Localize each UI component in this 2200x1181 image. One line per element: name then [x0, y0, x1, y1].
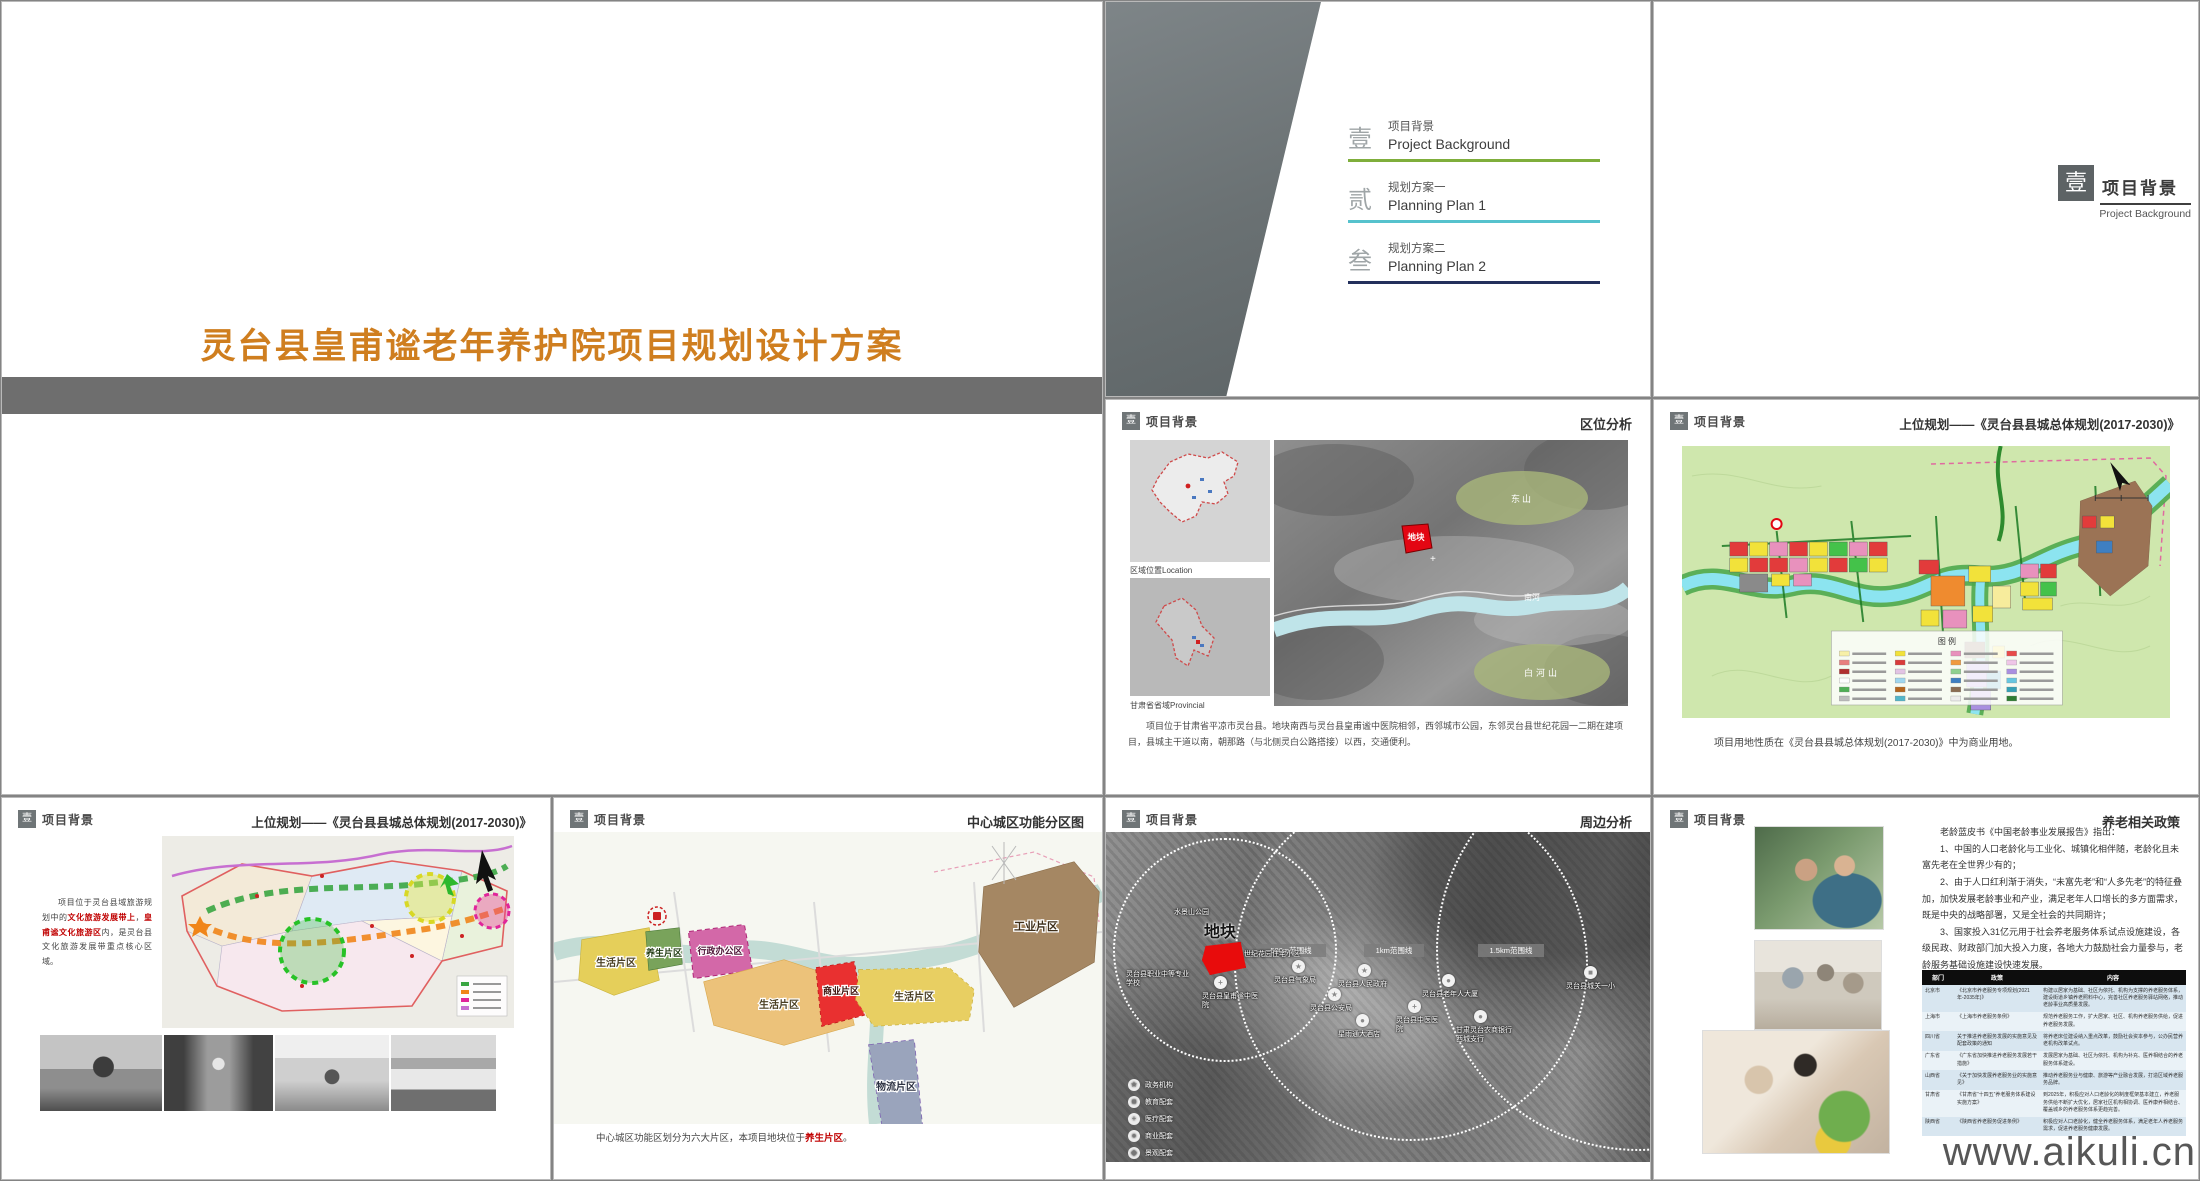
site-label: 地块 [1407, 532, 1425, 542]
slide-title: 周边分析 [1580, 812, 1632, 831]
cell-region: 山西省 [1922, 1070, 1954, 1090]
tourism-body-text: 项目位于灵台县域旅游规划中的文化旅游发展带上，皇甫谧文化旅游区内，是灵台县文化旅… [42, 896, 152, 970]
policy-intro-line: 老龄蓝皮书《中国老龄事业发展报告》指出： [1922, 824, 2184, 841]
slide-header: 壹 项目背景 [1670, 810, 1746, 828]
toc-item-2-label-zh: 规划方案一 [1388, 179, 1486, 195]
huangfumi-tourism-zone-circle [280, 919, 344, 983]
surroundings-aerial-map: 500m范围线 1km范围线 1.5km范围线 地块 + ★ ★ ★ ● + ●… [1106, 832, 1650, 1162]
china-map-caption: 区域位置Location [1130, 565, 1192, 576]
cell-region: 甘肃省 [1922, 1090, 1954, 1117]
slide-title: 上位规划——《灵台县县城总体规划(2017-2030)》 [251, 812, 532, 831]
zoning-caption-text-1: 中心城区功能区划分为六大片区，本项目地块位于 [596, 1133, 805, 1144]
poi-senior-center: 灵台县老年人大厦 [1422, 990, 1478, 999]
slide-header: 壹 项目背景 [1122, 810, 1198, 828]
zoning-caption-highlight: 养生片区 [805, 1133, 843, 1144]
policy-intro-line: 2、由于人口红利渐于消失，“未富先老”和“人多先老”的特征叠加，加快发展老龄事业… [1922, 874, 2184, 924]
government-star-icon: ★ [1128, 1079, 1140, 1091]
cell-policy: 《关于加快发展养老服务业的实施意见》 [1954, 1070, 2040, 1090]
cell-region: 四川省 [1922, 1031, 1954, 1051]
section-title-en: Project Background [2062, 208, 2191, 220]
zone-label-industrial: 工业片区 [1014, 919, 1058, 933]
section-underline [2100, 203, 2191, 205]
cell-content: 构建以居家为基础、社区为依托、机构为支撑的养老服务体系，建设街道乡镇养老照料中心… [2040, 985, 2186, 1012]
policy-table-header-policy: 政策 [1954, 970, 2040, 985]
zone-label-admin: 行政办公区 [696, 945, 742, 956]
policy-intro: 老龄蓝皮书《中国老龄事业发展报告》指出： 1、中国的人口老龄化与工业化、城镇化相… [1922, 824, 2184, 974]
legend-item-commercial: ● 商业配套 [1128, 1130, 1173, 1142]
slide-toc[interactable]: 壹 项目背景 Project Background 贰 规划方案一 Planni… [1106, 2, 1650, 396]
slide-header: 壹 项目背景 [1122, 412, 1198, 430]
slide-elderly-policy[interactable]: 壹 项目背景 养老相关政策 老龄蓝皮书《中国老龄事业发展报告》指出： 1、中国的… [1654, 798, 2198, 1179]
zone-label-logistics: 物流片区 [876, 1080, 916, 1093]
slide-location-analysis[interactable]: 壹 项目背景 区位分析 区域位置Location 甘肃省省域Provincial [1106, 400, 1650, 794]
zone-label-living-center: 生活片区 [759, 998, 799, 1011]
cover-bar [2, 377, 1102, 414]
poi-bank-branch: 甘肃灵台农商银行西城支行 [1456, 1026, 1518, 1044]
toc-item-3-label-en: Planning Plan 2 [1388, 258, 1486, 274]
slide-title: 中心城区功能分区图 [967, 812, 1084, 831]
slide-surroundings-analysis[interactable]: 壹 项目背景 周边分析 500m范围线 1km范围线 1.5km范围线 地块 +… [1106, 798, 1650, 1179]
section-number-badge: 壹 [1122, 412, 1140, 430]
poi-primary-school: 灵台县城关一小 [1566, 982, 1615, 991]
cell-region: 北京市 [1922, 985, 1954, 1012]
medical-cross-icon: + [1128, 1113, 1140, 1125]
poi-tcm-hospital: 灵台县皇甫谧中医院 [1202, 992, 1258, 1010]
ring-label-1km: 1km范围线 [1364, 944, 1424, 957]
tourism-text-2: ， [136, 913, 145, 922]
slide-header: 壹 项目背景 [18, 810, 94, 828]
master-plan-caption: 项目用地性质在《灵台县县城总体规划(2017-2030)》中为商业用地。 [1714, 734, 2018, 749]
tourism-planning-map [162, 836, 514, 1028]
zoning-caption: 中心城区功能区划分为六大片区，本项目地块位于养生片区。 [596, 1130, 853, 1144]
table-row: 上海市 《上海市养老服务条例》 规范养老服务工作，扩大居家、社区、机构养老服务供… [1922, 1012, 2186, 1032]
cell-region: 广东省 [1922, 1051, 1954, 1071]
toc-item-3[interactable]: 叁 规划方案二 Planning Plan 2 [1348, 240, 1600, 284]
site-location-dot [1196, 640, 1200, 644]
government-star-icon: ★ [1328, 988, 1341, 1001]
poi-tcm-clinic: 灵台县中医医院 [1396, 1016, 1440, 1034]
section-number-badge: 壹 [1670, 810, 1688, 828]
poi-public-security: 灵台县公安局 [1310, 1004, 1352, 1013]
site-watermark: www.aikuli.cn [1943, 1130, 2196, 1175]
photo-nurse-with-couple [1702, 1030, 1890, 1154]
site-location-dot [1186, 484, 1191, 489]
toc-item-1-number: 壹 [1348, 128, 1372, 152]
toc-item-3-number: 叁 [1348, 250, 1372, 274]
tourism-highlight-1: 文化旅游发展带上 [68, 913, 136, 922]
legend-item-medical: + 医疗配套 [1128, 1113, 1173, 1125]
photo-caregiver-tablet [1754, 826, 1884, 930]
slide-header-label: 项目背景 [1694, 811, 1746, 828]
hospital-cross-icon: + [1430, 554, 1436, 565]
site-marker [653, 912, 661, 920]
cell-content: 推动养老服务业与健康、旅游等产业融合发展，打造区域养老服务品牌。 [2040, 1070, 2186, 1090]
photo-temple-aerial [275, 1035, 389, 1111]
slide-master-plan[interactable]: 壹 项目背景 上位规划——《灵台县县城总体规划(2017-2030)》 [1654, 400, 2198, 794]
legend-label: 景观配套 [1145, 1148, 1173, 1158]
gansu-map-caption: 甘肃省省域Provincial [1130, 700, 1205, 711]
toc-item-3-label-zh: 规划方案二 [1388, 240, 1486, 256]
photo-care-home-group [1754, 940, 1882, 1030]
poi-meteorological-bureau: 灵台县气象局 [1274, 976, 1316, 985]
policy-table-header-region: 部门 [1922, 970, 1954, 985]
mini-legend [457, 976, 507, 1016]
policy-table: 部门 政策 内容 北京市 《北京市养老服务专项规划(2021年-2035年)》 … [1922, 970, 2186, 1136]
policy-intro-line: 1、中国的人口老龄化与工业化、城镇化相伴随，老龄化且未富先老在全世界少有的； [1922, 841, 2184, 874]
cell-policy: 《广东省加快推进养老服务发展若干措施》 [1954, 1051, 2040, 1071]
landscape-icon: ◆ [1128, 1147, 1140, 1159]
toc-wedge-shape [1106, 2, 1321, 396]
slide-header-label: 项目背景 [1146, 811, 1198, 828]
china-map-thumbnail [1130, 440, 1270, 562]
cell-policy: 《甘肃省“十四五”养老服务体系建设实施方案》 [1954, 1090, 2040, 1117]
slide-header-label: 项目背景 [1146, 413, 1198, 430]
zone-label-living-west: 生活片区 [596, 956, 636, 969]
toc-item-2[interactable]: 贰 规划方案一 Planning Plan 1 [1348, 179, 1600, 223]
bank-icon: ● [1474, 1010, 1487, 1023]
slide-header-label: 项目背景 [594, 811, 646, 828]
ring-label-1500m: 1.5km范围线 [1478, 944, 1544, 957]
table-row: 四川省 关于推进养老服务发展的实施意见及配套政策的通知 将养老床位建设纳入重点改… [1922, 1031, 2186, 1051]
cell-content: 到2025年，积极应对人口老龄化的制度框架基本建立，养老服务供给不断扩大优化，居… [2040, 1090, 2186, 1117]
cell-content: 发展居家为基础、社区为依托、机构为补充、医养相结合的养老服务体系建设。 [2040, 1051, 2186, 1071]
legend-label: 政务机构 [1145, 1080, 1173, 1090]
table-row: 甘肃省 《甘肃省“十四五”养老服务体系建设实施方案》 到2025年，积极应对人口… [1922, 1090, 2186, 1117]
deck-title: 灵台县皇甫谧老年养护院项目规划设计方案 [2, 318, 1102, 369]
poi-hotel: 星雨通大酒店 [1338, 1030, 1380, 1039]
slide-title: 上位规划——《灵台县县城总体规划(2017-2030)》 [1899, 414, 2180, 433]
commerce-icon: ● [1356, 1014, 1369, 1027]
poi-vocational-school: 灵台县职业中等专业学校 [1126, 970, 1190, 988]
slide-section-divider[interactable]: 壹 项目背景 Project Background [1654, 2, 2198, 396]
photo-hotel-building [391, 1035, 496, 1111]
south-mountain-label: 白河山 [1524, 667, 1560, 678]
zone-label-commercial: 商业片区 [823, 985, 859, 996]
map-legend: 图 例 [1831, 631, 2062, 705]
slide-grid: 灵台县皇甫谧老年养护院项目规划设计方案 壹 项目背景 Project Backg… [0, 0, 2200, 1181]
slide-header-label: 项目背景 [42, 811, 94, 828]
medical-cross-icon: + [1214, 976, 1227, 989]
school-icon: ■ [1128, 1096, 1140, 1108]
legend-item-landscape: ◆ 景观配套 [1128, 1147, 1173, 1159]
legend-title: 图 例 [1938, 636, 1956, 646]
toc-item-1-label-zh: 项目背景 [1388, 118, 1510, 134]
photo-monument-alley [164, 1035, 273, 1111]
cell-policy: 《上海市养老服务条例》 [1954, 1012, 2040, 1032]
government-star-icon: ★ [1292, 960, 1305, 973]
section-number-badge: 壹 [2058, 165, 2094, 201]
east-mountain-label: 东山 [1511, 493, 1533, 504]
toc-list: 壹 项目背景 Project Background 贰 规划方案一 Planni… [1348, 118, 1600, 301]
toc-item-1-label-en: Project Background [1388, 136, 1510, 152]
legend-item-education: ■ 教育配套 [1128, 1096, 1173, 1108]
legend-item-government: ★ 政务机构 [1128, 1079, 1173, 1091]
poi-residential: 世纪花园住宅小区 [1244, 950, 1300, 959]
table-row: 广东省 《广东省加快推进养老服务发展若干措施》 发展居家为基础、社区为依托、机构… [1922, 1051, 2186, 1071]
table-row: 北京市 《北京市养老服务专项规划(2021年-2035年)》 构建以居家为基础、… [1922, 985, 2186, 1012]
zoning-map: 生活片区 养生片区 行政办公区 生活片区 商业片区 生活片区 工业片区 物流片区 [554, 832, 1102, 1124]
legend-label: 商业配套 [1145, 1131, 1173, 1141]
toc-item-2-label-en: Planning Plan 1 [1388, 197, 1486, 213]
photo-pavilion [40, 1035, 162, 1111]
slide-header: 壹 项目背景 [570, 810, 646, 828]
slide-header: 壹 项目背景 [1670, 412, 1746, 430]
table-row: 山西省 《关于加快发展养老服务业的实施意见》 推动养老服务业与健康、旅游等产业融… [1922, 1070, 2186, 1090]
cell-content: 将养老床位建设纳入重点改革，鼓励社会资本参与，公办民营养老机构改革试点。 [2040, 1031, 2186, 1051]
policy-table-header-content: 内容 [2040, 970, 2186, 985]
east-tourism-zone-circle [475, 894, 509, 928]
master-plan-map: 图 例 [1682, 446, 2170, 718]
commerce-icon: ● [1442, 974, 1455, 987]
toc-item-1[interactable]: 壹 项目背景 Project Background [1348, 118, 1600, 162]
toc-item-2-number: 贰 [1348, 189, 1372, 213]
school-icon: ■ [1584, 966, 1597, 979]
policy-intro-line: 3、国家投入31亿元用于社会养老服务体系试点设施建设，各级民政、财政部门加大投入… [1922, 924, 2184, 974]
poi-park: 水景山公园 [1174, 908, 1209, 917]
aerial-location-map: 东山 白河山 南河 地块 + [1274, 440, 1628, 706]
zoning-caption-text-2: 。 [843, 1133, 853, 1144]
commerce-icon: ● [1128, 1130, 1140, 1142]
site-label: 地块 [1204, 918, 1236, 942]
medical-cross-icon: + [1408, 1000, 1421, 1013]
slide-cover[interactable]: 灵台县皇甫谧老年养护院项目规划设计方案 [2, 2, 1102, 794]
section-number-badge: 壹 [18, 810, 36, 828]
government-star-icon: ★ [1358, 964, 1371, 977]
site-marker [1772, 519, 1782, 529]
slide-tourism-plan[interactable]: 壹 项目背景 上位规划——《灵台县县城总体规划(2017-2030)》 项目位于… [2, 798, 550, 1179]
section-number-badge: 壹 [570, 810, 588, 828]
location-body-text: 项目位于甘肃省平凉市灵台县。地块南西与灵台县皇甫谧中医院相邻，西邻城市公园，东邻… [1128, 718, 1633, 750]
legend-label: 教育配套 [1145, 1097, 1173, 1107]
cell-policy: 《北京市养老服务专项规划(2021年-2035年)》 [1954, 985, 2040, 1012]
section-title-zh: 项目背景 [2102, 174, 2178, 199]
zone-label-wellness: 养生片区 [645, 947, 682, 958]
section-number-badge: 壹 [1670, 412, 1688, 430]
cell-policy: 关于推进养老服务发展的实施意见及配套政策的通知 [1954, 1031, 2040, 1051]
river-label: 南河 [1524, 592, 1540, 602]
slide-functional-zoning[interactable]: 壹 项目背景 中心城区功能分区图 [554, 798, 1102, 1179]
legend-label: 医疗配套 [1145, 1114, 1173, 1124]
zone-label-living-east: 生活片区 [894, 990, 934, 1003]
gansu-map-thumbnail [1130, 578, 1270, 696]
slide-header-label: 项目背景 [1694, 413, 1746, 430]
cell-region: 上海市 [1922, 1012, 1954, 1032]
section-number-badge: 壹 [1122, 810, 1140, 828]
cell-content: 规范养老服务工作，扩大居家、社区、机构养老服务供给，促进养老服务发展。 [2040, 1012, 2186, 1032]
slide-title: 区位分析 [1580, 414, 1632, 433]
poi-county-government: 灵台县人民政府 [1338, 980, 1387, 989]
